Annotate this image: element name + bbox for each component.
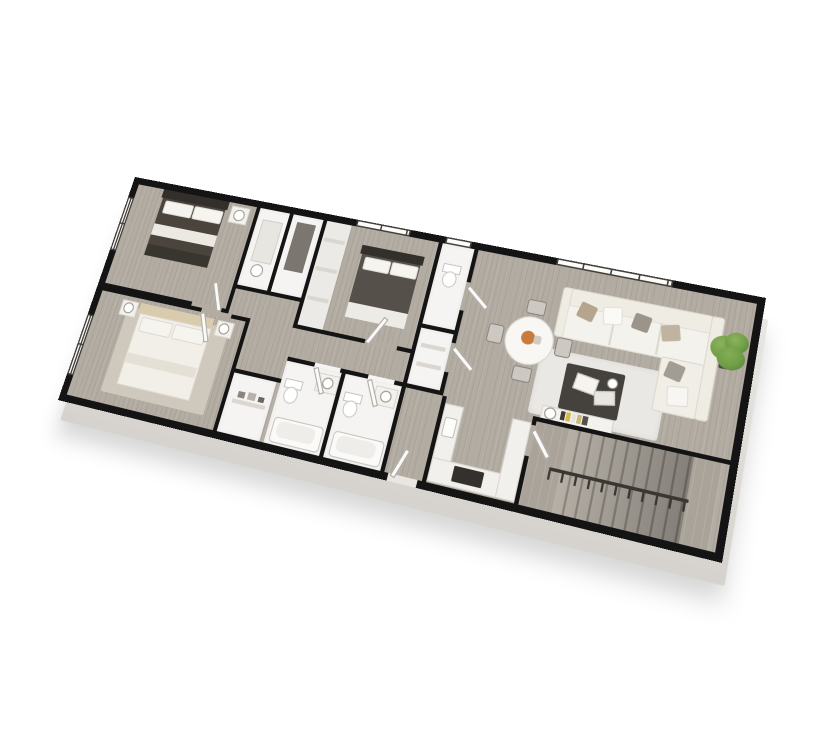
- coffee-table-book: [594, 391, 615, 406]
- throw-pillow: [666, 386, 688, 408]
- throw-pillow: [661, 325, 681, 342]
- floor-plan-canvas: [0, 0, 828, 753]
- throw-pillow: [603, 307, 623, 326]
